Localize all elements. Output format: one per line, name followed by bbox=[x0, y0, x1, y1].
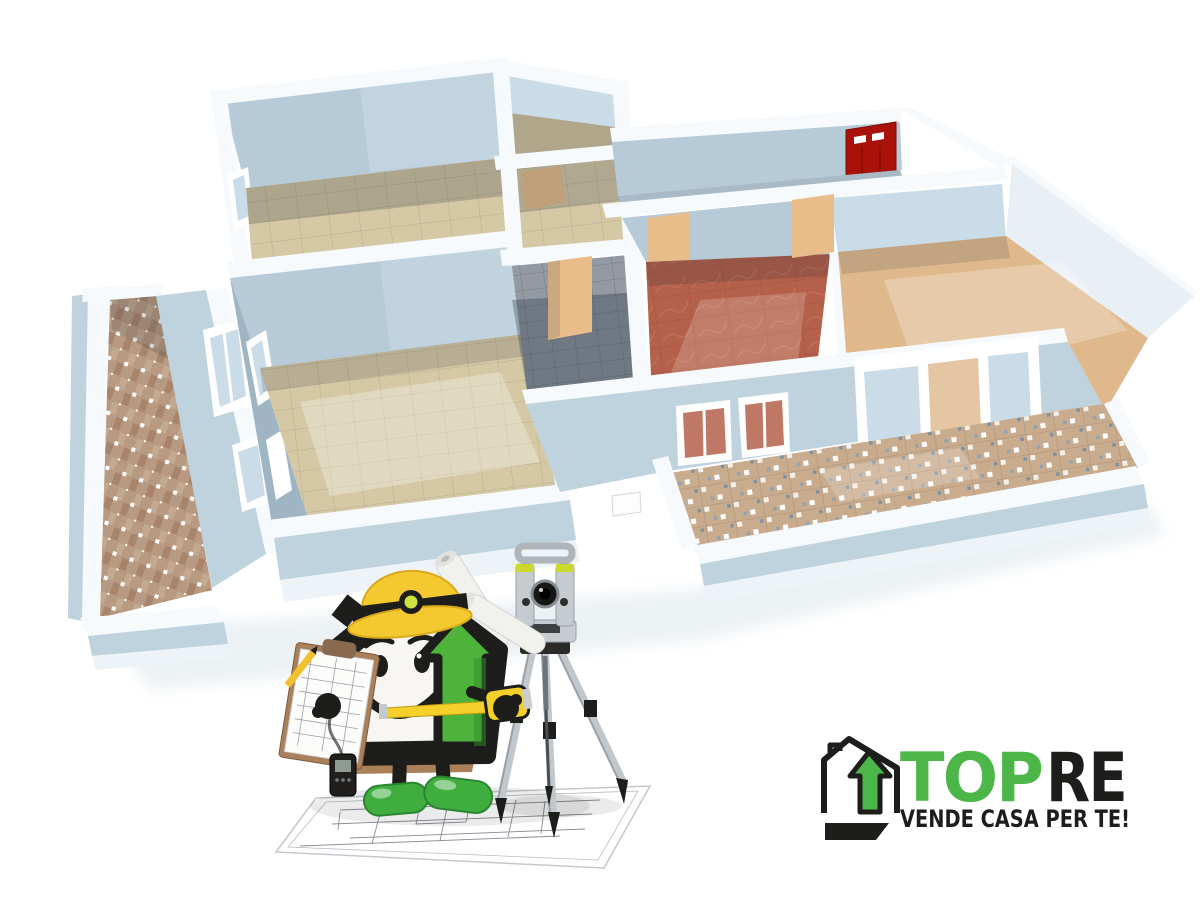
window-terracotta-2 bbox=[738, 392, 790, 458]
bath-door-shade bbox=[548, 260, 560, 340]
promo-image: TOP RE VENDE CASA PER TE! bbox=[0, 0, 1200, 900]
logo-tagline: VENDE CASA PER TE! bbox=[900, 805, 1130, 833]
utility-box bbox=[612, 492, 641, 516]
wall-top bbox=[898, 108, 1012, 168]
window-terracotta-1 bbox=[676, 400, 732, 466]
logo-base-bar bbox=[825, 823, 889, 840]
center-pole bbox=[545, 656, 546, 710]
tape-hook bbox=[379, 704, 387, 719]
leg-clamp bbox=[584, 700, 597, 717]
door-bedroom bbox=[792, 194, 834, 258]
wall-interior-back-light bbox=[360, 72, 502, 172]
floorplan-illustration: TOP RE VENDE CASA PER TE! bbox=[0, 0, 1200, 900]
logo-topre: TOP RE VENDE CASA PER TE! bbox=[824, 739, 1130, 840]
leg-clamp bbox=[543, 722, 556, 739]
